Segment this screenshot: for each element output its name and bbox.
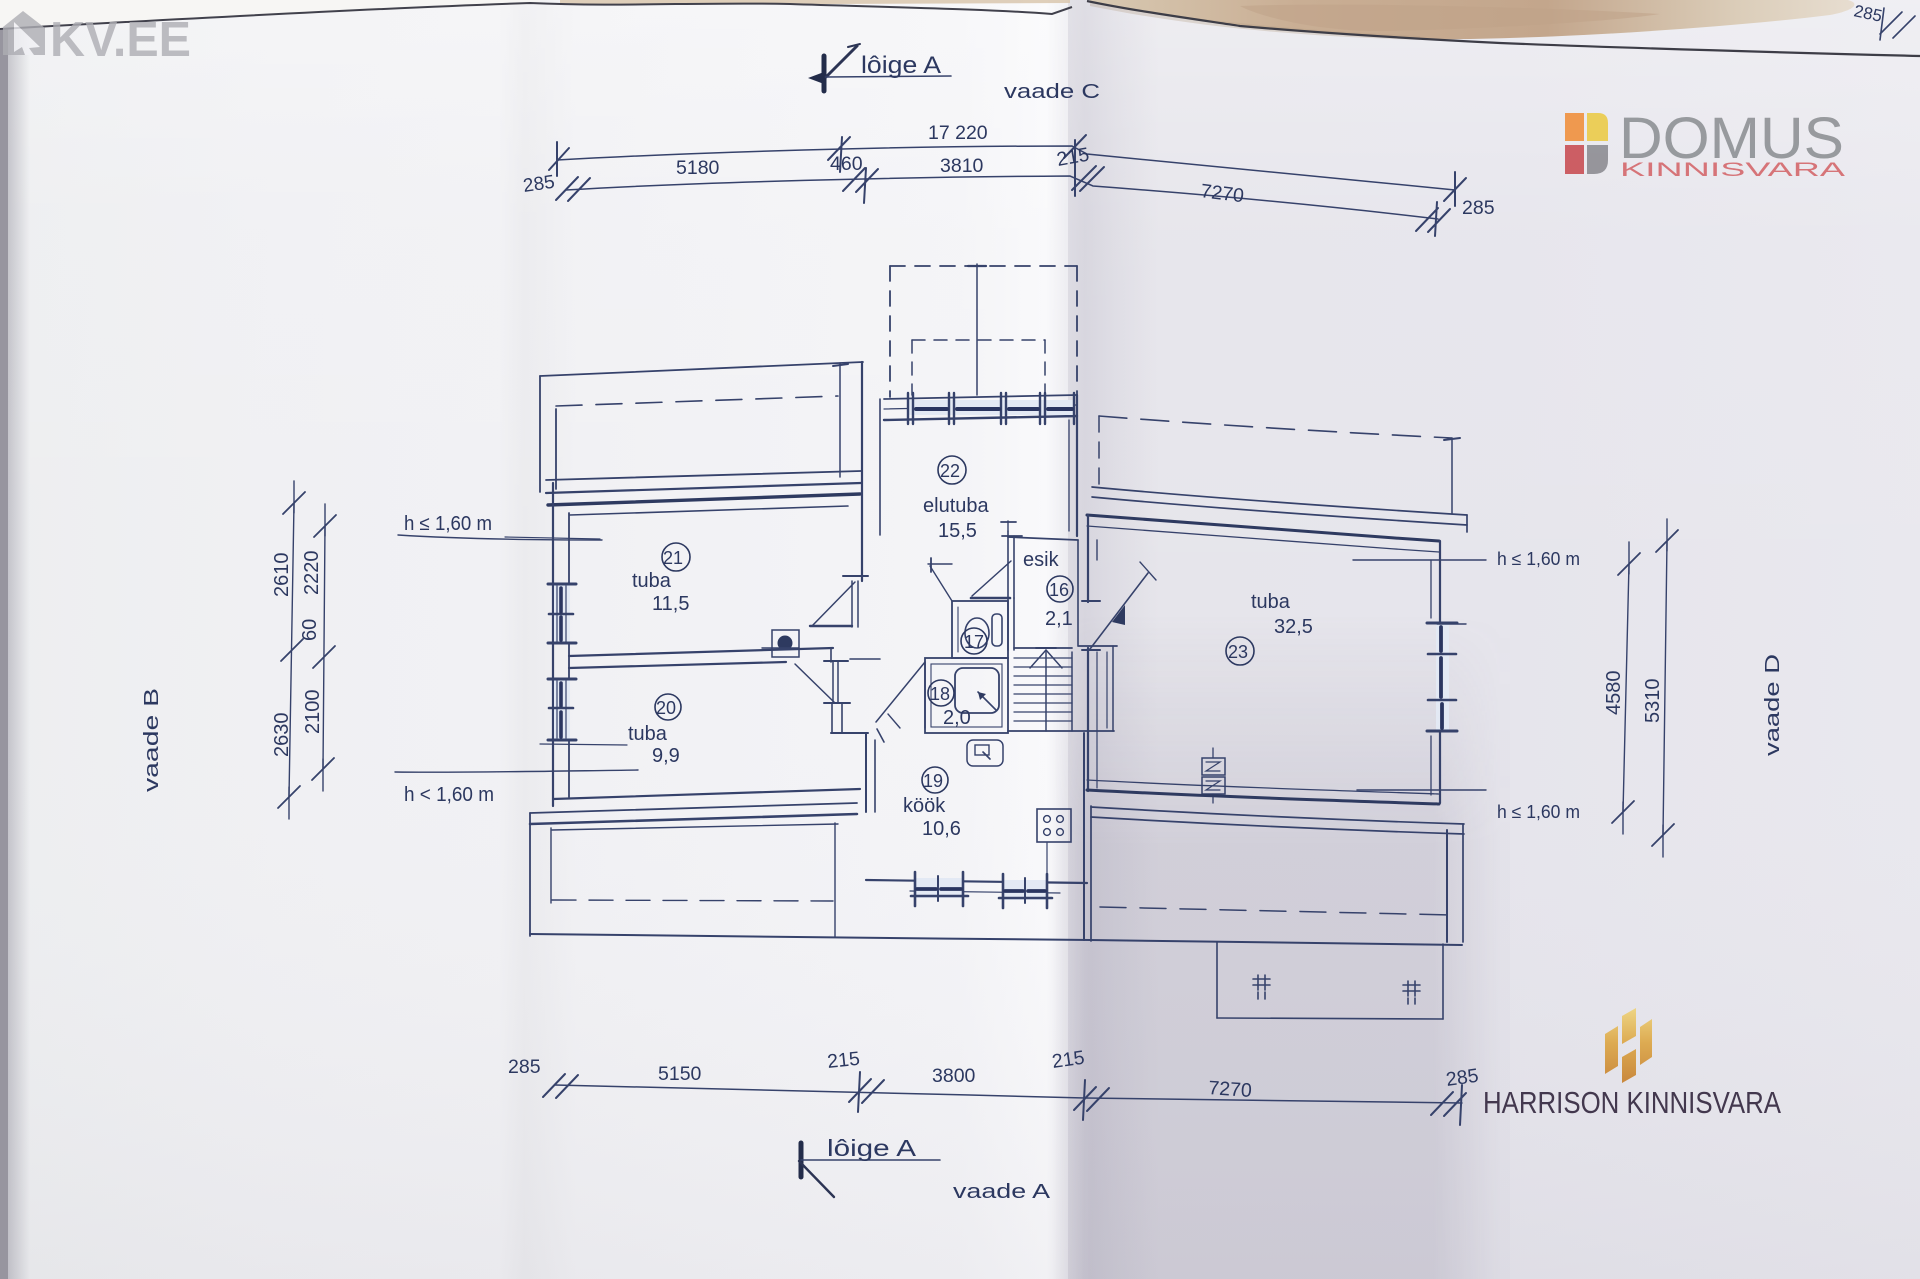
svg-text:15,5: 15,5 <box>938 520 977 542</box>
svg-text:2220: 2220 <box>301 551 323 596</box>
svg-text:KINNISVARA: KINNISVARA <box>1620 159 1845 181</box>
svg-text:17: 17 <box>964 632 984 652</box>
svg-text:2,1: 2,1 <box>1045 608 1073 630</box>
svg-text:5180: 5180 <box>676 157 720 179</box>
svg-text:21: 21 <box>663 548 683 568</box>
svg-text:18: 18 <box>930 684 950 704</box>
svg-text:vaade B: vaade B <box>141 688 163 792</box>
svg-text:2630: 2630 <box>271 713 293 758</box>
svg-text:460: 460 <box>830 153 863 175</box>
svg-text:vaade D: vaade D <box>1762 654 1784 756</box>
svg-text:tuba: tuba <box>1251 591 1291 613</box>
svg-text:11,5: 11,5 <box>652 593 689 615</box>
svg-text:tuba: tuba <box>628 723 668 745</box>
svg-text:285: 285 <box>508 1056 541 1078</box>
svg-text:60: 60 <box>299 619 321 641</box>
svg-text:3800: 3800 <box>932 1065 976 1087</box>
svg-text:HARRISON KINNISVARA: HARRISON KINNISVARA <box>1483 1085 1781 1120</box>
svg-text:KV.EE: KV.EE <box>50 13 191 67</box>
svg-text:32,5: 32,5 <box>1274 616 1313 638</box>
svg-text:215: 215 <box>1051 1047 1086 1073</box>
svg-text:h ≤ 1,60 m: h ≤ 1,60 m <box>404 513 492 535</box>
svg-text:2,0: 2,0 <box>943 707 971 729</box>
svg-text:3810: 3810 <box>940 155 984 177</box>
svg-text:elutuba: elutuba <box>923 495 989 517</box>
svg-text:16: 16 <box>1049 580 1069 600</box>
svg-text:vaade A: vaade A <box>953 1181 1051 1203</box>
svg-text:9,9: 9,9 <box>652 745 680 767</box>
svg-text:22: 22 <box>940 461 960 481</box>
svg-text:20: 20 <box>656 698 676 718</box>
svg-text:esik: esik <box>1023 549 1060 571</box>
svg-text:lôige A: lôige A <box>827 1135 917 1161</box>
svg-text:2610: 2610 <box>271 553 293 598</box>
svg-text:19: 19 <box>923 771 943 791</box>
svg-text:215: 215 <box>826 1048 861 1073</box>
svg-text:7270: 7270 <box>1208 1077 1253 1102</box>
svg-text:10,6: 10,6 <box>922 818 961 840</box>
svg-text:h ≤ 1,60 m: h ≤ 1,60 m <box>1497 549 1580 569</box>
svg-text:17 220: 17 220 <box>928 122 988 144</box>
svg-text:lôige A: lôige A <box>861 52 941 79</box>
svg-text:285: 285 <box>522 172 556 197</box>
svg-text:tuba: tuba <box>632 570 672 592</box>
svg-text:5310: 5310 <box>1642 679 1664 724</box>
svg-text:285: 285 <box>1445 1065 1480 1091</box>
svg-text:23: 23 <box>1228 642 1248 662</box>
svg-text:285: 285 <box>1462 197 1495 219</box>
svg-text:vaade C: vaade C <box>1004 81 1100 103</box>
svg-text:5150: 5150 <box>658 1063 702 1085</box>
svg-text:h ≤ 1,60 m: h ≤ 1,60 m <box>1497 802 1580 822</box>
svg-text:2100: 2100 <box>302 690 324 735</box>
svg-text:4580: 4580 <box>1603 671 1625 716</box>
svg-text:h < 1,60 m: h < 1,60 m <box>404 784 494 806</box>
svg-text:köök: köök <box>903 795 946 817</box>
